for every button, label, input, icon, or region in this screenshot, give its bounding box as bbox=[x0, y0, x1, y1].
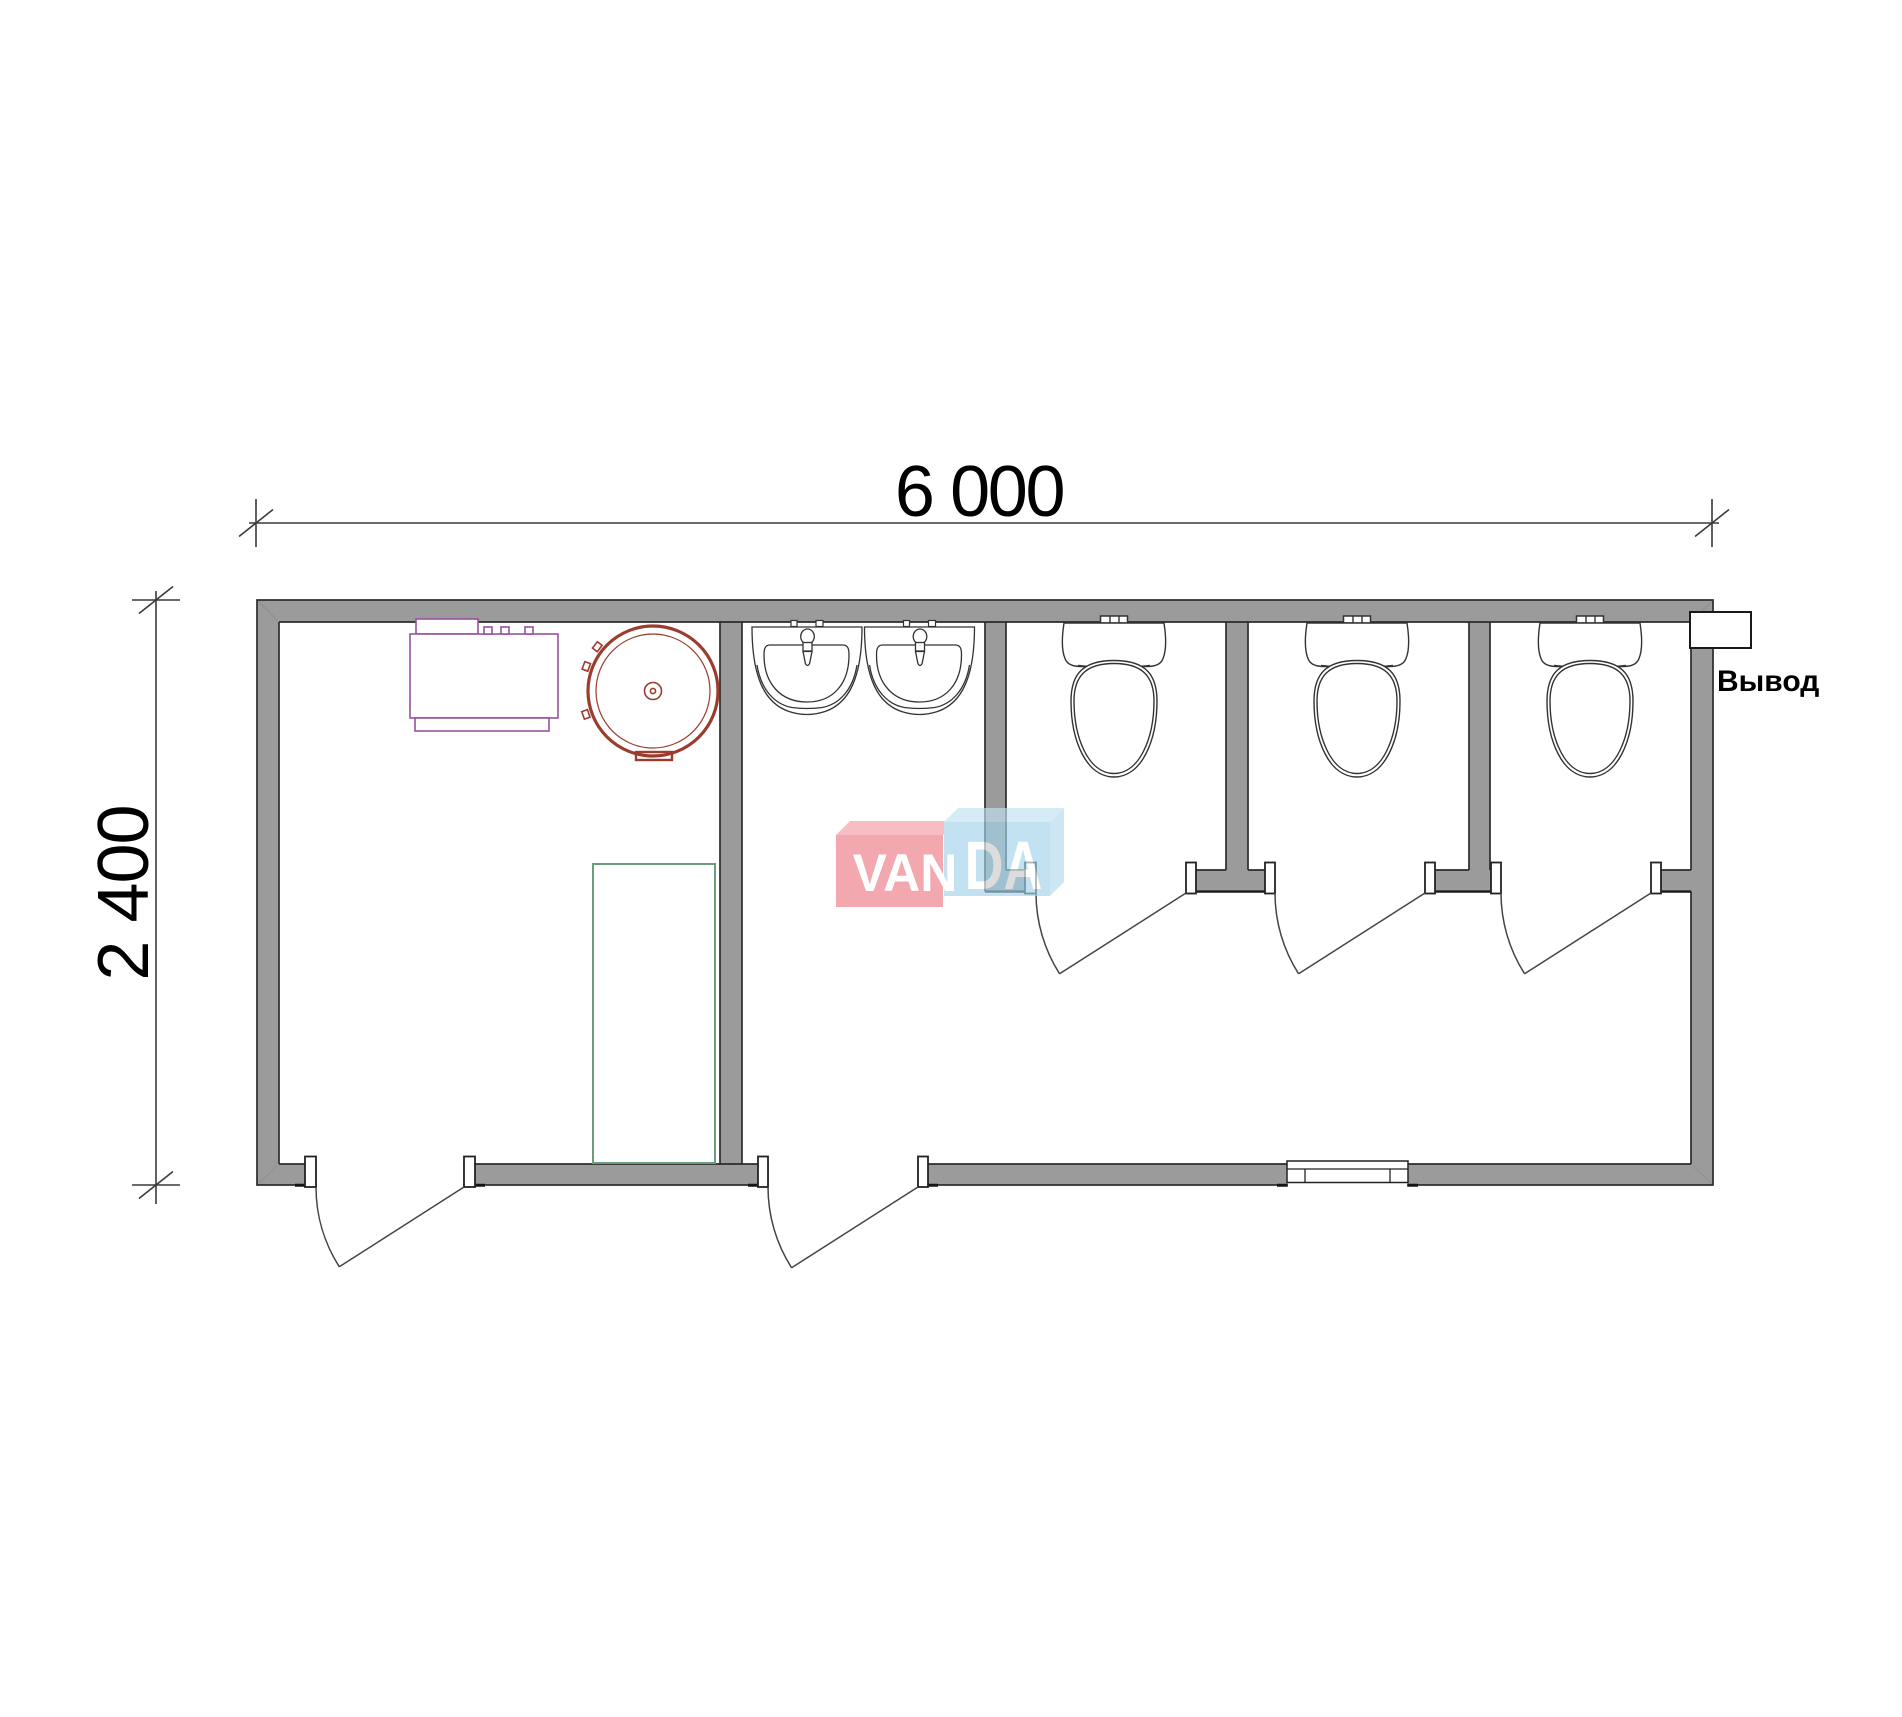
svg-text:VAN: VAN bbox=[853, 844, 958, 903]
svg-text:2 400: 2 400 bbox=[84, 805, 164, 980]
svg-text:Вывод: Вывод bbox=[1717, 665, 1819, 698]
svg-text:DA: DA bbox=[965, 828, 1043, 905]
svg-text:6 000: 6 000 bbox=[895, 452, 1064, 532]
